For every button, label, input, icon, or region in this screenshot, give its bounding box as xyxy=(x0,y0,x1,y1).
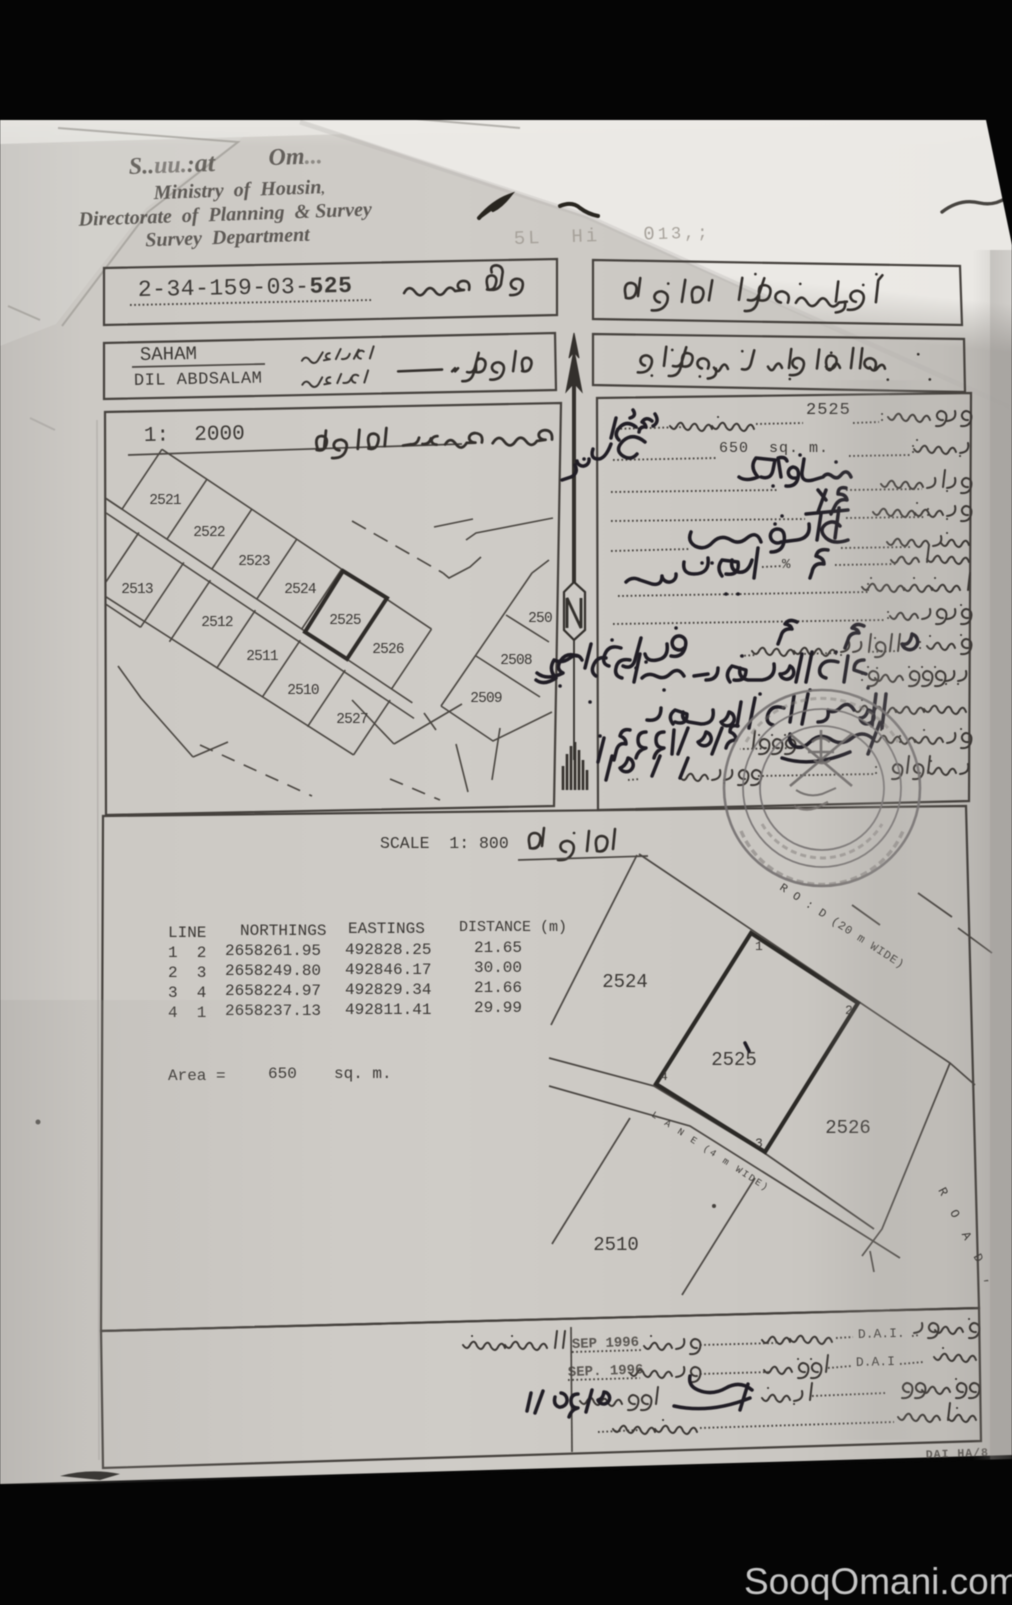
svg-text:LINE: LINE xyxy=(168,924,206,942)
svg-text:2658224.97: 2658224.97 xyxy=(225,982,321,1000)
svg-text:Om...: Om... xyxy=(268,143,323,171)
svg-text:2658261.95: 2658261.95 xyxy=(225,942,321,960)
svg-text:EASTINGS: EASTINGS xyxy=(348,920,425,938)
svg-text:2527: 2527 xyxy=(336,712,368,728)
svg-text:SCALE 1: 800: SCALE 1: 800 xyxy=(380,834,509,853)
svg-text:1: 2000: 1: 2000 xyxy=(144,423,245,448)
svg-text:2-34-159-03-525: 2-34-159-03-525 xyxy=(138,273,353,303)
svg-text:2513: 2513 xyxy=(121,582,153,598)
svg-text:492829.34: 492829.34 xyxy=(345,981,431,999)
svg-text:1: 1 xyxy=(755,939,763,954)
svg-text:3 4: 3 4 xyxy=(168,984,206,1002)
svg-text:492828.25: 492828.25 xyxy=(345,941,431,959)
svg-text:S..uu.:at: S..uu.:at xyxy=(128,148,216,180)
svg-text:2509: 2509 xyxy=(470,691,502,707)
svg-text:%: % xyxy=(782,557,791,573)
svg-text:SooqOmani.com: SooqOmani.com xyxy=(744,1561,1012,1600)
svg-text:2658249.80: 2658249.80 xyxy=(225,962,321,980)
svg-text:21.65: 21.65 xyxy=(474,939,522,957)
svg-text:2526: 2526 xyxy=(372,642,404,658)
svg-text:29.99: 29.99 xyxy=(474,999,522,1017)
svg-text:2523: 2523 xyxy=(238,554,270,570)
svg-text:3: 3 xyxy=(755,1136,763,1151)
svg-text:21.66: 21.66 xyxy=(474,979,522,997)
svg-text:2524: 2524 xyxy=(602,971,648,993)
svg-text:492811.41: 492811.41 xyxy=(345,1001,431,1019)
svg-text:DISTANCE (m): DISTANCE (m) xyxy=(459,919,567,936)
svg-text:492846.17: 492846.17 xyxy=(345,961,431,979)
svg-text:sq. m.: sq. m. xyxy=(334,1065,392,1083)
svg-text:4: 4 xyxy=(660,1069,668,1084)
svg-text:SEP 1996: SEP 1996 xyxy=(572,1335,640,1353)
svg-text:2510: 2510 xyxy=(287,683,319,699)
svg-text:2521: 2521 xyxy=(149,493,181,509)
svg-text:2525: 2525 xyxy=(329,613,361,629)
svg-text:2522: 2522 xyxy=(193,525,225,541)
svg-text:DIL ABDSALAM: DIL ABDSALAM xyxy=(134,370,263,391)
svg-text:2511: 2511 xyxy=(246,649,278,665)
svg-text:1 2: 1 2 xyxy=(168,944,206,962)
svg-text:250: 250 xyxy=(528,611,552,627)
svg-text:NORTHINGS: NORTHINGS xyxy=(240,922,326,940)
svg-text:SAHAM: SAHAM xyxy=(140,343,197,366)
svg-text:2524: 2524 xyxy=(284,582,316,598)
svg-text:30.00: 30.00 xyxy=(474,959,522,977)
svg-text:2510: 2510 xyxy=(593,1234,639,1256)
svg-text:2 3: 2 3 xyxy=(168,964,206,982)
svg-text:2512: 2512 xyxy=(201,615,233,631)
svg-text:2508: 2508 xyxy=(500,653,532,669)
